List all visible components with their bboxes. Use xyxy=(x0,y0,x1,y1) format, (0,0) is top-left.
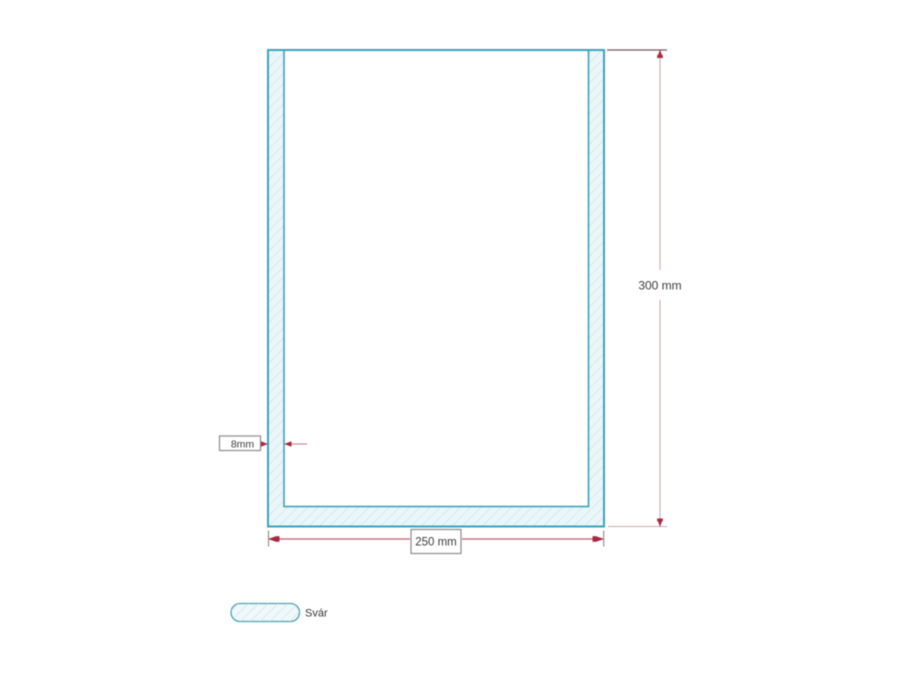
svg-text:8mm: 8mm xyxy=(231,439,255,451)
svg-text:Svár: Svár xyxy=(305,608,328,620)
svg-text:250 mm: 250 mm xyxy=(415,537,457,549)
svg-text:300 mm: 300 mm xyxy=(638,279,681,293)
